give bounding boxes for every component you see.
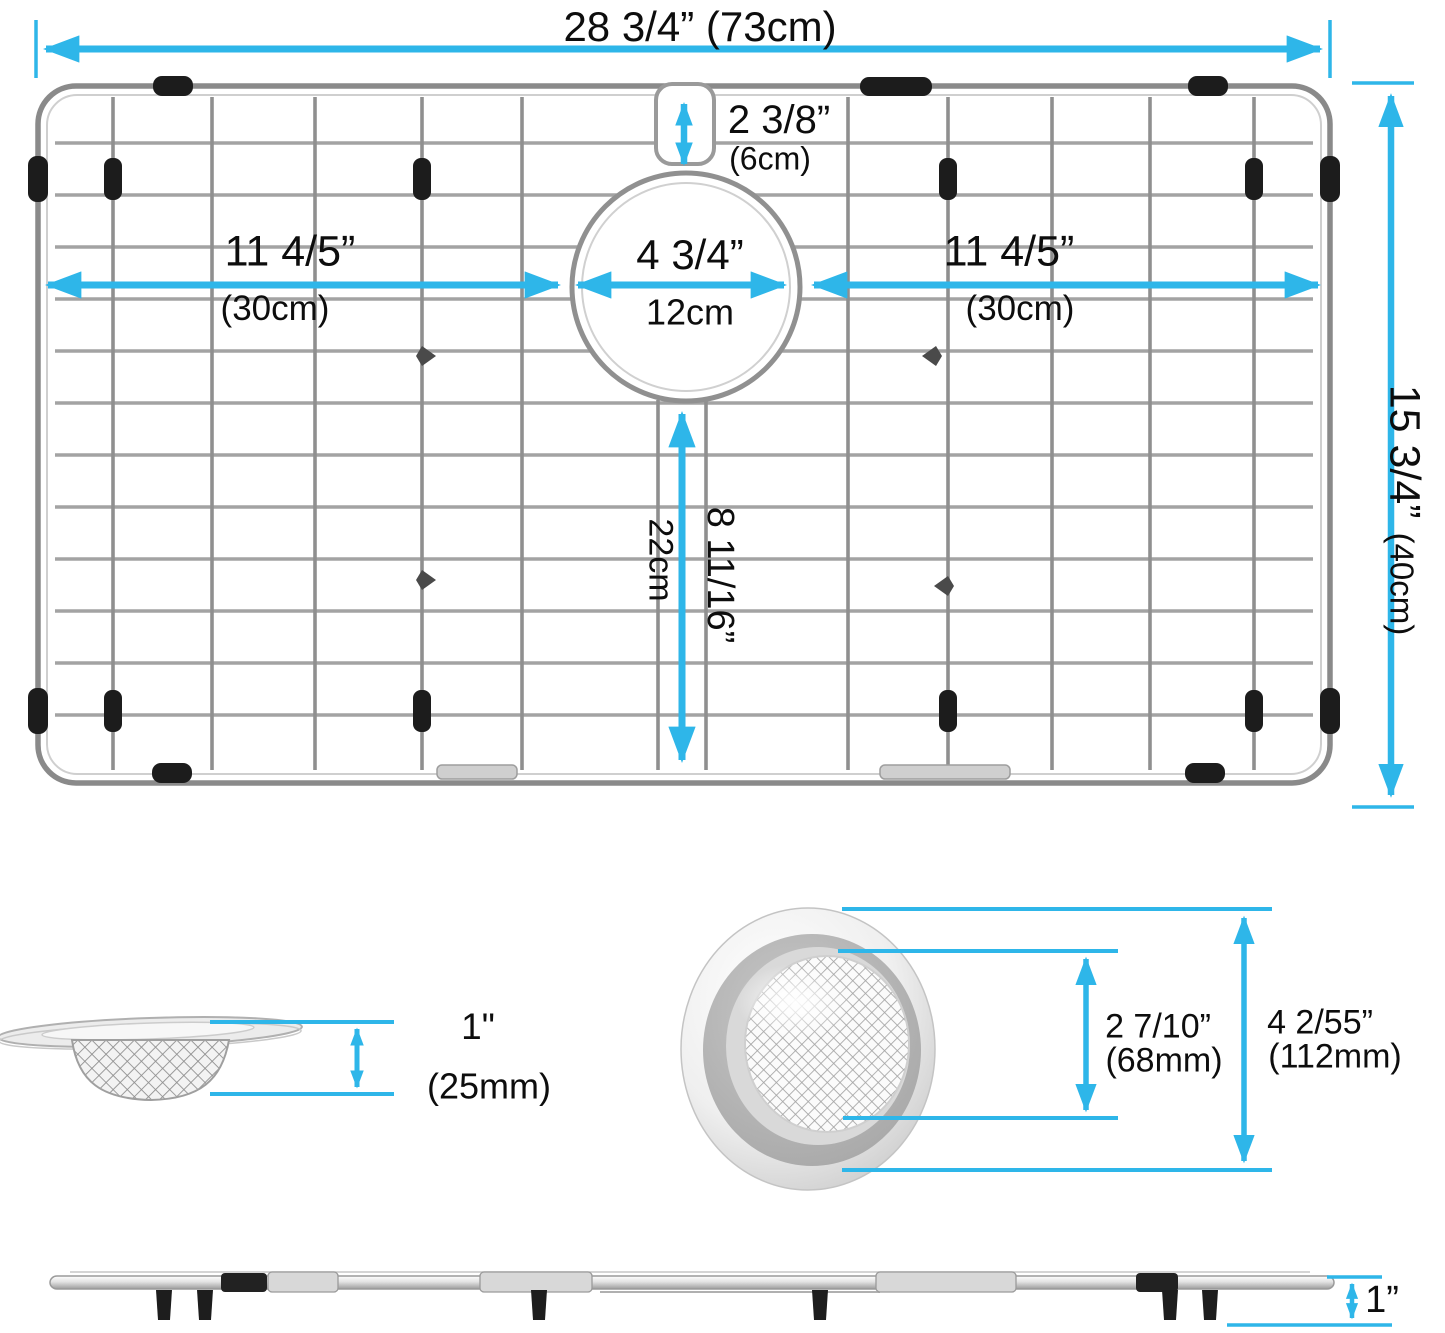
- overall-width-label: 28 3/4” (73cm): [563, 5, 836, 49]
- right-span-inches-label: 11 4/5”: [944, 230, 1075, 275]
- strainer-side-view: [0, 1013, 302, 1100]
- hole-to-bottom-inches-label: 8 11/16”: [699, 507, 739, 644]
- strainer-outer-inches-label: 4 2/55”: [1267, 1005, 1373, 1040]
- grid-side-feet: [156, 1290, 1218, 1320]
- left-span-cm-label: (30cm): [221, 291, 330, 327]
- strainer-shine: [737, 964, 853, 1040]
- strainer-outer-mm-label: (112mm): [1268, 1039, 1402, 1074]
- right-span-cm-label: (30cm): [966, 291, 1075, 327]
- hole-to-bottom-cm-label: 22cm: [642, 518, 677, 601]
- side-height-inches-label: 1”: [1365, 1281, 1399, 1321]
- strainer-height-inches-label: 1": [461, 1008, 495, 1046]
- left-span-inches-label: 11 4/5”: [225, 230, 356, 275]
- notch-inches-label: 2 3/8”: [728, 100, 830, 142]
- overall-height-cm: (40cm): [1384, 533, 1418, 636]
- overall-height-inches: 15 3/4”: [1382, 385, 1427, 519]
- hole-cm-label: 12cm: [646, 293, 734, 330]
- notch-cm-label: (6cm): [729, 142, 811, 175]
- hole-inches-label: 4 3/4”: [636, 233, 743, 277]
- strainer-inner-mm-label: (68mm): [1105, 1043, 1222, 1078]
- overall-width-cm: (73cm): [706, 3, 837, 50]
- strainer-inner-inches-label: 2 7/10”: [1105, 1009, 1211, 1044]
- overall-width-inches: 28 3/4”: [563, 3, 694, 50]
- overall-height-label: 15 3/4” (40cm): [1382, 385, 1427, 636]
- strainer-height-mm-label: (25mm): [427, 1067, 551, 1104]
- diagram-artwork: [0, 0, 1445, 1333]
- strainer-side-basket: [72, 1040, 229, 1100]
- product-dimension-diagram: 28 3/4” (73cm) 2 3/8” (6cm) 11 4/5” (30c…: [0, 0, 1445, 1333]
- grid-side-view: [50, 1272, 1334, 1320]
